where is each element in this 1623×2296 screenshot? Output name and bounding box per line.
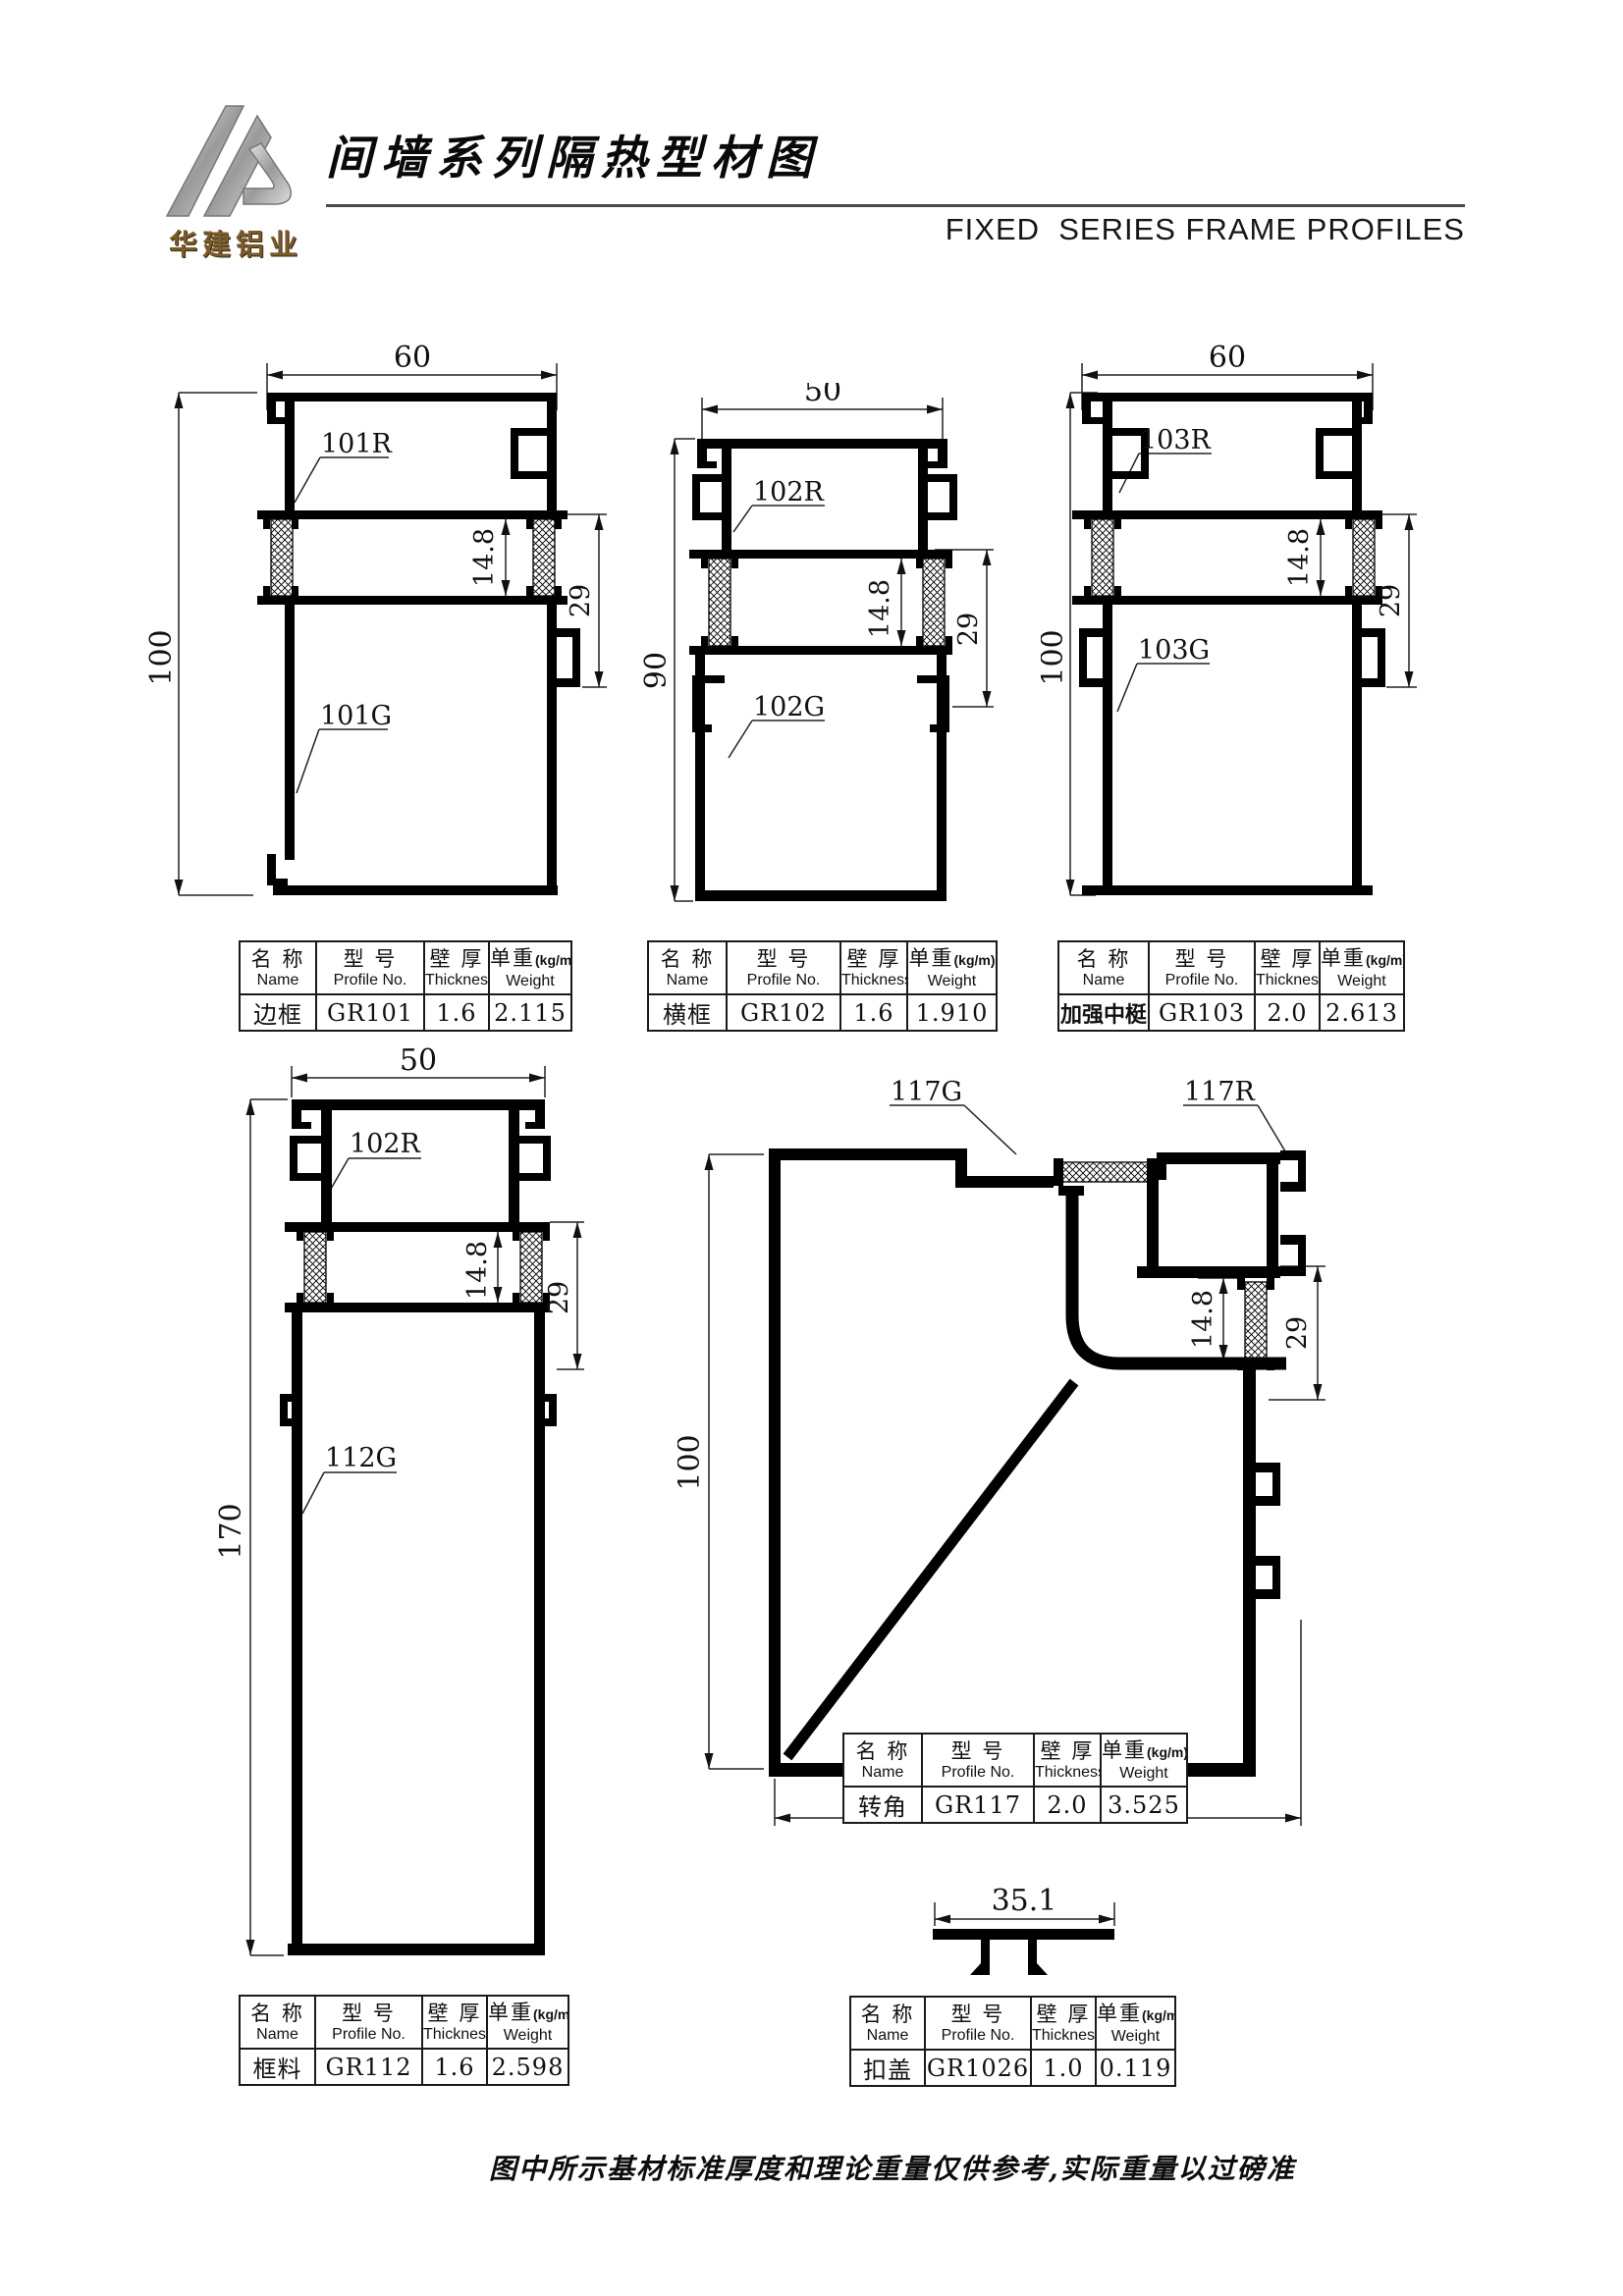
cell-thickness: 2.0 <box>1255 994 1320 1031</box>
spec-table-gr102: 名 称Name 型 号Profile No. 壁 厚Thickness 单重(k… <box>647 940 998 1032</box>
part-label-g: 103G <box>1138 635 1210 666</box>
dim-width: 60 <box>394 341 431 375</box>
header-profile-no: 型 号Profile No. <box>1149 941 1255 994</box>
drawing-sheet: { "header": { "logo_text": "华建铝业", "titl… <box>0 0 1623 2296</box>
dim-width: 60 <box>1209 341 1246 375</box>
header-thickness: 壁 厚Thickness <box>1031 1997 1096 2050</box>
thermal-break-strip <box>1353 519 1375 596</box>
cell-thickness: 1.6 <box>424 994 489 1031</box>
dim-height: 100 <box>1041 629 1070 685</box>
dim-height: 100 <box>147 629 179 685</box>
header-name: 名 称Name <box>850 1997 925 2050</box>
header-name: 名 称Name <box>240 1996 315 2049</box>
dimension-arrows <box>705 1154 1323 1823</box>
thermal-break-strip <box>304 1232 326 1303</box>
thermal-break-strip <box>709 559 730 646</box>
dim-gap: 14.8 <box>462 1241 493 1300</box>
spec-table-gr103: 名 称Name 型 号Profile No. 壁 厚Thickness 单重(k… <box>1057 940 1405 1032</box>
cell-name: 加强中梃 <box>1058 994 1149 1031</box>
dim-zone: 29 <box>544 1281 574 1314</box>
page-title: 间墙系列隔热型材图 <box>326 120 821 187</box>
profile-drawing-gr1026: 35.1 <box>884 1865 1159 1993</box>
spec-table-gr112: 名 称Name 型 号Profile No. 壁 厚Thickness 单重(k… <box>239 1995 569 2086</box>
header-profile-no: 型 号Profile No. <box>316 941 424 994</box>
dim-gap: 14.8 <box>1188 1290 1218 1349</box>
cell-profile-no: GR101 <box>316 994 424 1031</box>
dim-zone: 29 <box>1376 584 1406 617</box>
cell-weight: 3.525 <box>1101 1787 1187 1823</box>
header-weight: 单重(kg/m)Weight <box>487 1996 568 2049</box>
header-profile-no: 型 号Profile No. <box>315 1996 422 2049</box>
part-label-r: 101R <box>321 429 393 459</box>
cell-weight: 0.119 <box>1096 2050 1175 2086</box>
spec-table-gr117: 名 称Name 型 号Profile No. 壁 厚Thickness 单重(k… <box>842 1733 1188 1824</box>
part-label-g: 112G <box>325 1443 397 1473</box>
cell-profile-no: GR1026 <box>925 2050 1031 2086</box>
cell-thickness: 1.6 <box>422 2049 487 2085</box>
dim-height: 170 <box>214 1503 248 1559</box>
cell-profile-no: GR102 <box>727 994 840 1031</box>
part-label-g: 101G <box>320 701 392 731</box>
header-name: 名 称Name <box>843 1734 922 1787</box>
cell-profile-no: GR117 <box>922 1787 1034 1823</box>
header-weight: 单重(kg/m)Weight <box>489 941 571 994</box>
cell-weight: 2.613 <box>1320 994 1404 1031</box>
thermal-break-strip <box>520 1232 542 1303</box>
header-thickness: 壁 厚Thickness <box>840 941 907 994</box>
cell-name: 框料 <box>240 2049 315 2085</box>
header-weight: 单重(kg/m)Weight <box>1101 1734 1187 1787</box>
footer-note: 图中所示基材标准厚度和理论重量仅供参考,实际重量以过磅准 <box>489 2148 1296 2187</box>
spec-table-gr101: 名 称Name 型 号Profile No. 壁 厚Thickness 单重(k… <box>239 940 572 1032</box>
dim-height: 100 <box>677 1434 707 1490</box>
profile-section-gr112 <box>280 1099 557 1955</box>
dim-gap: 14.8 <box>865 579 895 638</box>
title-underline <box>326 204 1465 207</box>
profile-drawing-gr102: 50 90 14.8 29 102R 102G <box>638 383 1051 918</box>
part-label-g: 117G <box>891 1077 962 1107</box>
profile-section-gr101 <box>257 393 580 895</box>
header-thickness: 壁 厚Thickness <box>1034 1734 1101 1787</box>
cell-weight: 1.910 <box>907 994 997 1031</box>
thermal-break-strip <box>533 519 555 596</box>
cell-weight: 2.598 <box>487 2049 568 2085</box>
header-name: 名 称Name <box>240 941 316 994</box>
cell-thickness: 1.0 <box>1031 2050 1096 2086</box>
profile-drawing-gr101: 60 100 14.8 29 101R 101G <box>147 334 609 913</box>
header-weight: 单重(kg/m)Weight <box>1320 941 1404 994</box>
cell-name: 横框 <box>648 994 727 1031</box>
profile-drawing-gr117: 100 100 14.8 29 117G 117R <box>677 1070 1424 1845</box>
page-subtitle: FIXED SERIES FRAME PROFILES <box>679 212 1465 247</box>
cell-name: 转角 <box>843 1787 922 1823</box>
cell-profile-no: GR103 <box>1149 994 1255 1031</box>
dim-zone: 29 <box>566 584 596 617</box>
part-label-g: 102G <box>753 692 825 722</box>
header-name: 名 称Name <box>1058 941 1149 994</box>
header-profile-no: 型 号Profile No. <box>925 1997 1031 2050</box>
header-thickness: 壁 厚Thickness <box>422 1996 487 2049</box>
dim-width: 50 <box>804 383 841 408</box>
company-logo-icon <box>145 86 322 224</box>
part-label-r: 103R <box>1140 425 1212 455</box>
header-weight: 单重(kg/m)Weight <box>1096 1997 1175 2050</box>
profile-section-gr103 <box>1072 393 1385 895</box>
part-label-r: 102R <box>753 477 825 507</box>
thermal-break-strip <box>1245 1282 1267 1362</box>
dim-gap: 14.8 <box>1284 528 1315 587</box>
dim-width: 35.1 <box>992 1884 1057 1918</box>
header-thickness: 壁 厚Thickness <box>1255 941 1320 994</box>
part-label-r: 117R <box>1184 1077 1256 1107</box>
profile-section-gr1026 <box>933 1929 1114 1975</box>
thermal-break-strip <box>923 559 945 646</box>
cell-profile-no: GR112 <box>315 2049 422 2085</box>
spec-table-gr1026: 名 称Name 型 号Profile No. 壁 厚Thickness 单重(k… <box>849 1996 1176 2087</box>
company-logo-text: 华建铝业 <box>143 222 328 263</box>
profile-drawing-gr103: 60 100 14.8 29 103R 103G <box>1041 334 1473 913</box>
dim-zone: 29 <box>1282 1316 1313 1350</box>
dim-width: 50 <box>400 1043 437 1078</box>
header-profile-no: 型 号Profile No. <box>922 1734 1034 1787</box>
part-label-r: 102R <box>350 1129 421 1159</box>
diagonal-brace <box>787 1382 1074 1757</box>
cell-thickness: 1.6 <box>840 994 907 1031</box>
header-profile-no: 型 号Profile No. <box>727 941 840 994</box>
cell-name: 边框 <box>240 994 316 1031</box>
thermal-break-strip <box>271 519 293 596</box>
dim-gap: 14.8 <box>469 528 500 587</box>
cell-weight: 2.115 <box>489 994 571 1031</box>
thermal-break-strip <box>1092 519 1113 596</box>
thermal-break-strip <box>1061 1162 1149 1182</box>
profile-section-gr102 <box>689 439 957 901</box>
profile-drawing-gr112: 50 170 14.8 29 102R 112G <box>172 1041 614 1983</box>
dim-zone: 29 <box>953 613 984 646</box>
header-thickness: 壁 厚Thickness <box>424 941 489 994</box>
dim-height: 90 <box>639 652 674 689</box>
cell-thickness: 2.0 <box>1034 1787 1101 1823</box>
header-weight: 单重(kg/m)Weight <box>907 941 997 994</box>
header-name: 名 称Name <box>648 941 727 994</box>
cell-name: 扣盖 <box>850 2050 925 2086</box>
